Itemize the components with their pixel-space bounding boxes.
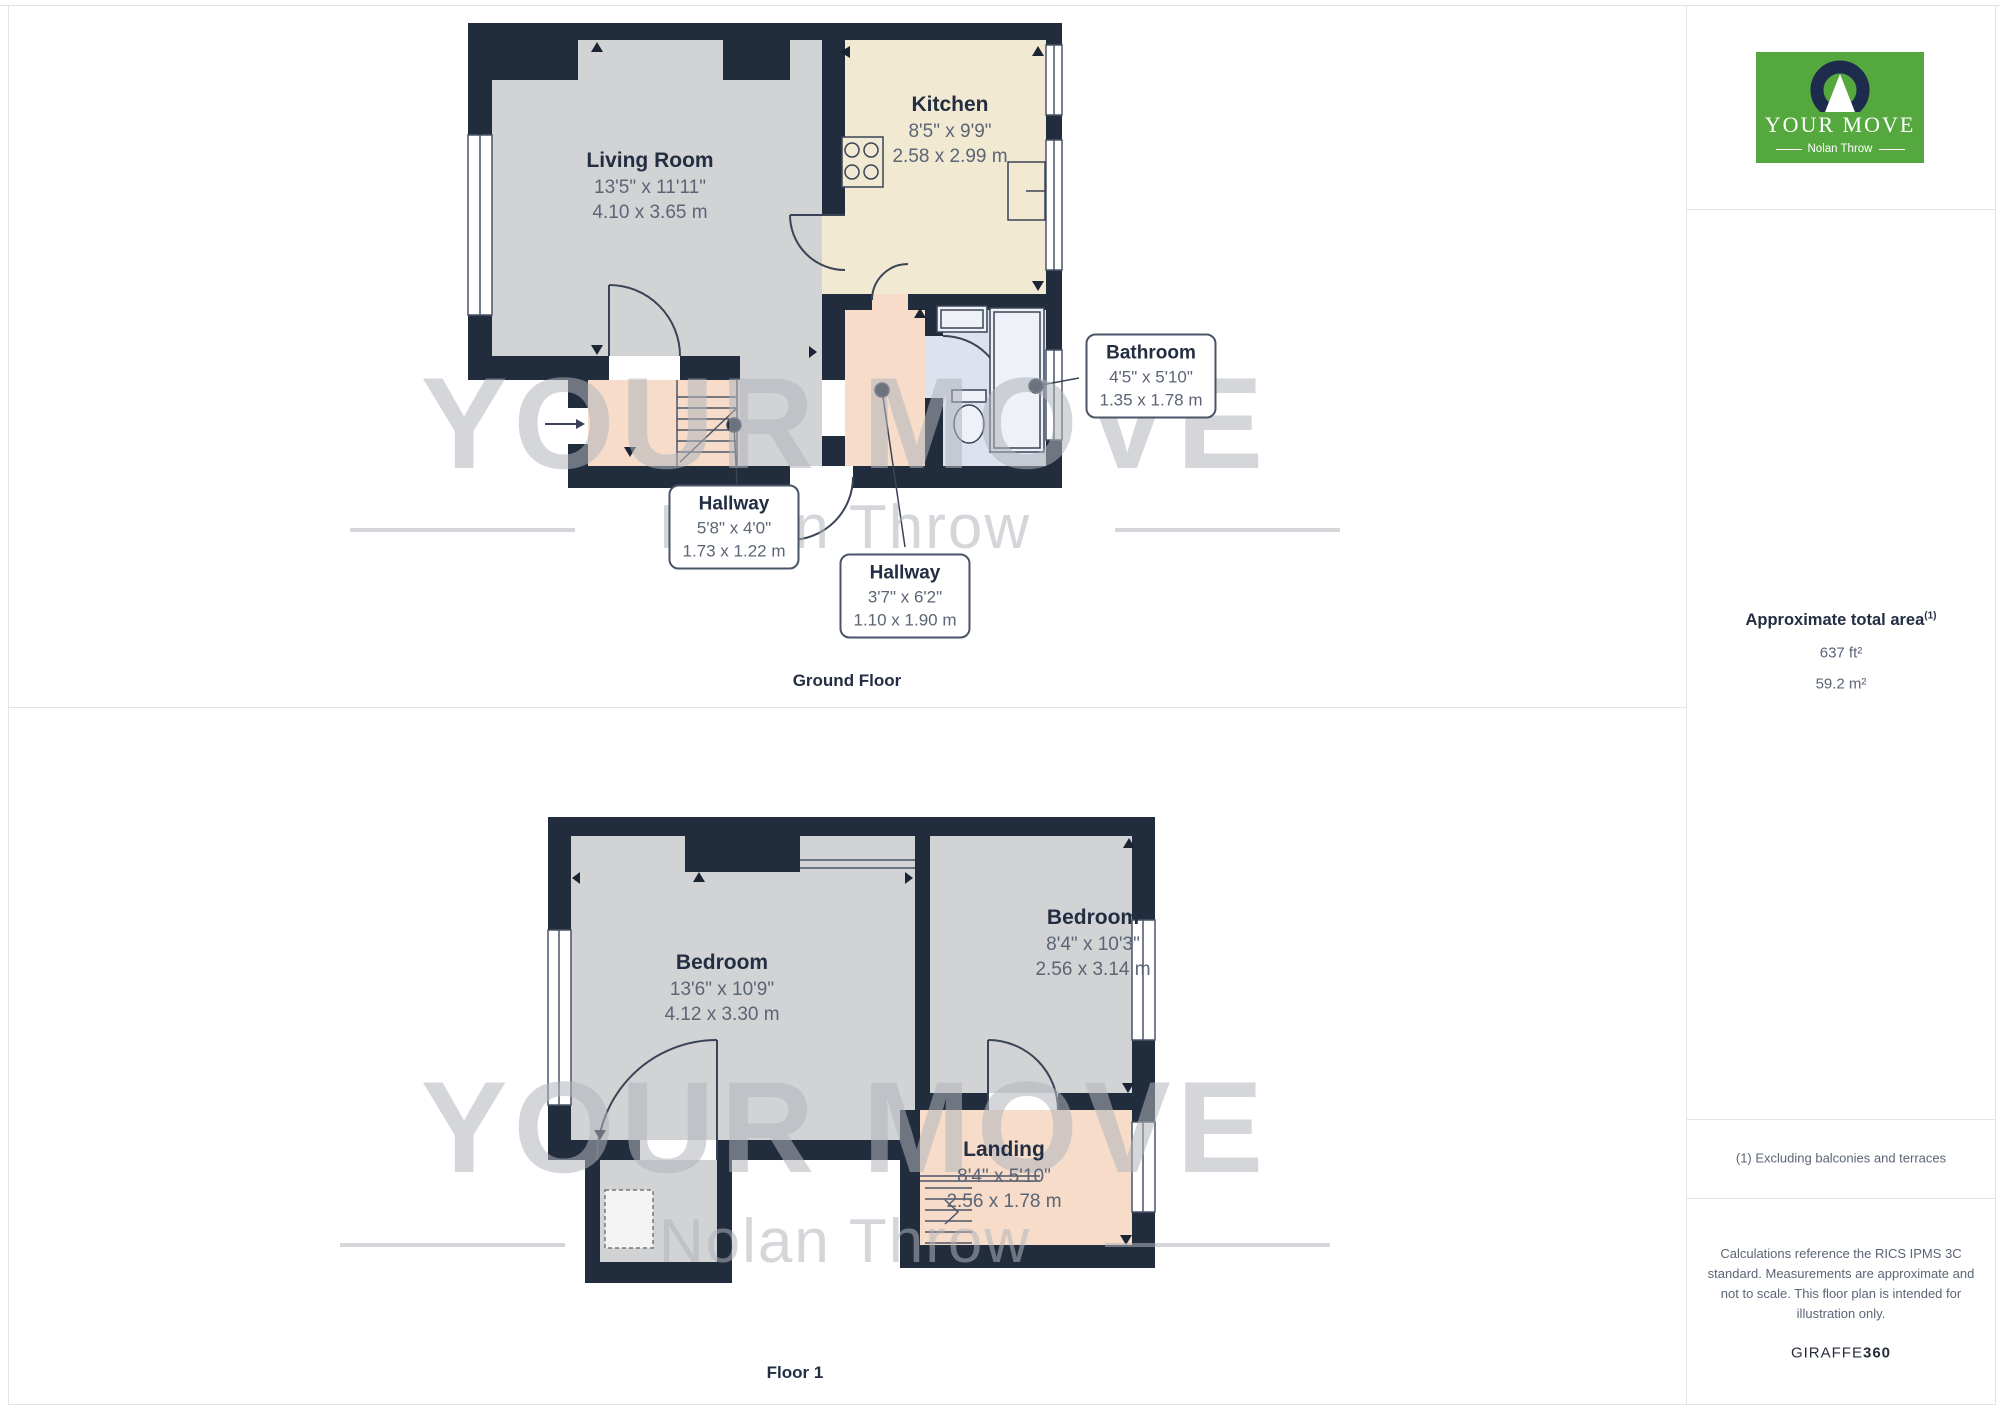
room-name: Bedroom [664, 949, 779, 977]
floorplan-page: YOUR MOVE Nolan Throw [0, 0, 2000, 1414]
room-name: Hallway [682, 492, 785, 517]
room-dims-metric: 2.56 x 1.78 m [946, 1189, 1061, 1214]
watermark-sub: Nolan Throw [659, 1207, 1031, 1276]
logo-brand-text: YOUR MOVE [1756, 112, 1924, 138]
giraffe360-credit: GIRAFFE360 [1791, 1345, 1891, 1362]
room-name: Bathroom [1099, 341, 1202, 366]
room-dims-metric: 2.58 x 2.99 m [892, 144, 1007, 169]
room-name: Hallway [853, 561, 956, 586]
credit-suffix: 360 [1863, 1345, 1891, 1362]
room-dims-metric: 4.10 x 3.65 m [586, 200, 713, 225]
floors-divider [8, 707, 1686, 708]
room-dims-imperial: 4'5" x 5'10" [1099, 366, 1202, 389]
sidebar-divider [1686, 5, 1687, 1405]
logo-rule-right [1879, 149, 1905, 150]
bedroom2-label: Bedroom 8'4" x 10'3" 2.56 x 3.14 m [1035, 904, 1150, 982]
ground-floor-caption: Ground Floor [793, 671, 902, 691]
room-dims-imperial: 8'4" x 10'3" [1035, 932, 1150, 957]
left-border [8, 5, 9, 1405]
footnote-text: (1) Excluding balconies and terraces [1691, 1151, 1991, 1166]
total-area-metric: 59.2 m² [1816, 676, 1867, 693]
credit-brand: GIRAFFE [1791, 1345, 1863, 1362]
room-name: Kitchen [892, 91, 1007, 119]
room-dims-imperial: 8'5" x 9'9" [892, 119, 1007, 144]
hallway1-callout: Hallway 5'8" x 4'0" 1.73 x 1.22 m [668, 485, 799, 570]
bathroom-callout: Bathroom 4'5" x 5'10" 1.35 x 1.78 m [1085, 334, 1216, 419]
room-dims-imperial: 5'8" x 4'0" [682, 517, 785, 540]
right-border [1995, 5, 1996, 1405]
room-dims-metric: 1.73 x 1.22 m [682, 540, 785, 563]
bedroom1-label: Bedroom 13'6" x 10'9" 4.12 x 3.30 m [664, 949, 779, 1027]
room-dims-metric: 1.10 x 1.90 m [853, 609, 956, 632]
total-area-heading: Approximate total area(1) [1745, 610, 1936, 630]
giraffe-ring-icon [1756, 52, 1924, 112]
watermark-brand: YOUR MOVE [421, 1054, 1270, 1200]
room-dims-imperial: 13'6" x 10'9" [664, 977, 779, 1002]
logo-sub-row: Nolan Throw [1756, 143, 1924, 155]
top-border [0, 5, 2000, 6]
room-name: Living Room [586, 147, 713, 175]
logo-rule-left [1776, 149, 1802, 150]
room-dims-imperial: 3'7" x 6'2" [853, 586, 956, 609]
hallway2-callout: Hallway 3'7" x 6'2" 1.10 x 1.90 m [839, 554, 970, 639]
room-dims-metric: 4.12 x 3.30 m [664, 1002, 779, 1027]
watermark-floor1: YOUR MOVE Nolan Throw [340, 1054, 1330, 1276]
sidebar-divider-footnote [1686, 1119, 1995, 1120]
landing-label: Landing 8'4" x 5'10" 2.56 x 1.78 m [946, 1136, 1061, 1214]
room-name: Bedroom [1035, 904, 1150, 932]
total-area-title: Approximate total area [1745, 611, 1924, 629]
total-area-imperial: 637 ft² [1820, 645, 1863, 662]
sidebar-divider-disclaimer [1686, 1198, 1995, 1199]
agency-logo: YOUR MOVE Nolan Throw [1756, 52, 1924, 163]
kitchen-label: Kitchen 8'5" x 9'9" 2.58 x 2.99 m [892, 91, 1007, 169]
disclaimer-text: Calculations reference the RICS IPMS 3C … [1701, 1244, 1981, 1324]
bottom-border [8, 1404, 1996, 1405]
floor1-caption: Floor 1 [767, 1363, 824, 1383]
logo-sub-text: Nolan Throw [1808, 143, 1873, 155]
total-area-superscript: (1) [1924, 610, 1936, 621]
room-dims-imperial: 13'5" x 11'11" [586, 175, 713, 200]
room-dims-imperial: 8'4" x 5'10" [946, 1164, 1061, 1189]
room-dims-metric: 1.35 x 1.78 m [1099, 389, 1202, 412]
sidebar-divider-logo [1686, 209, 1995, 210]
room-name: Landing [946, 1136, 1061, 1164]
living-room-label: Living Room 13'5" x 11'11" 4.10 x 3.65 m [586, 147, 713, 225]
room-dims-metric: 2.56 x 3.14 m [1035, 957, 1150, 982]
